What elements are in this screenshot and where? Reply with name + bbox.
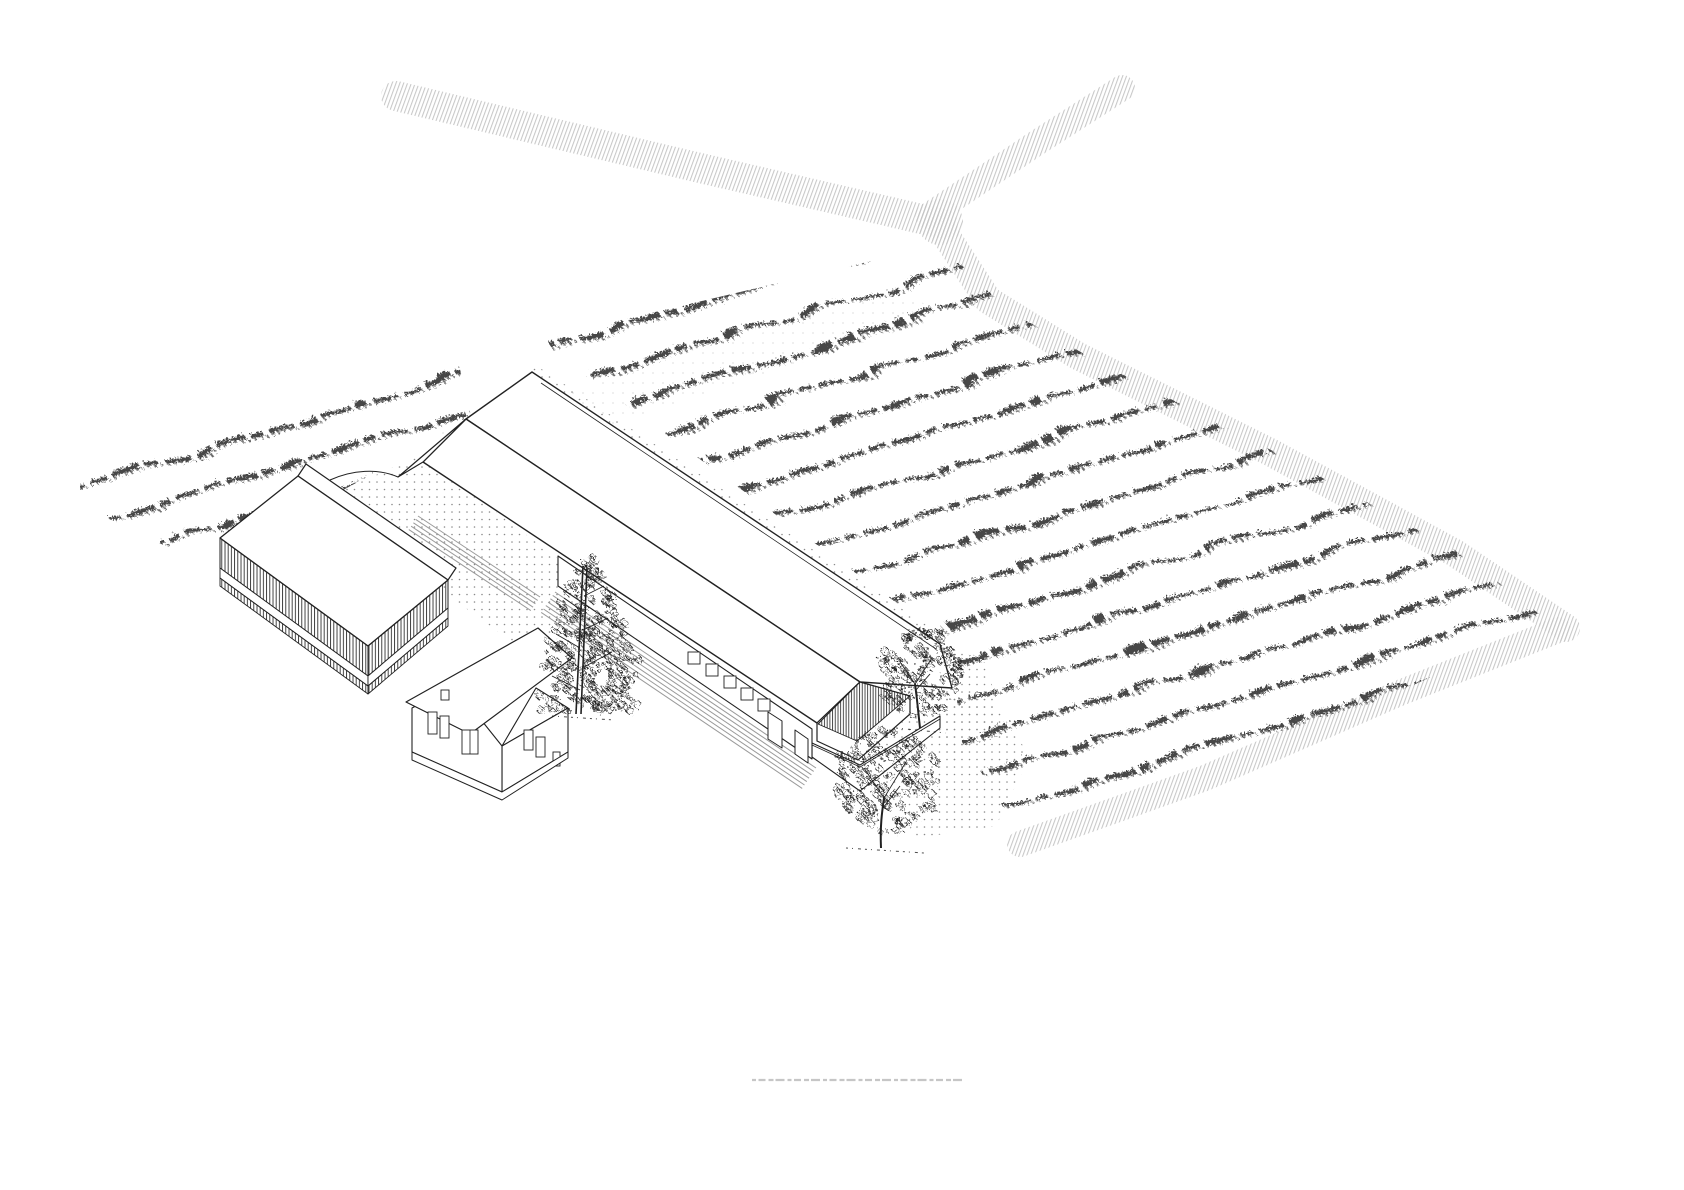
farmhouse-window [536, 737, 545, 757]
grass-tufts [846, 848, 924, 853]
road-upper-left [396, 96, 943, 224]
long-barn-window [758, 699, 770, 711]
farmhouse-window [428, 712, 437, 734]
long-barn-window [741, 688, 753, 700]
long-barn-window [724, 676, 736, 688]
crop-row-detail [0, 26, 1637, 517]
crop-row [0, 60, 1646, 551]
road-right-edge [941, 228, 1566, 628]
site-axonometric-drawing [0, 0, 1684, 1190]
crop-row-detail [0, 63, 1648, 554]
long-barn-window [706, 664, 718, 676]
road-upper-right [928, 88, 1122, 216]
long-barn-window [688, 652, 700, 664]
crop-row [0, 23, 1635, 514]
farmhouse-window [441, 690, 449, 700]
drawing-canvas [0, 0, 1684, 1190]
road-junction [917, 199, 963, 245]
farmhouse-window [440, 716, 449, 738]
farmhouse-window [524, 730, 533, 750]
